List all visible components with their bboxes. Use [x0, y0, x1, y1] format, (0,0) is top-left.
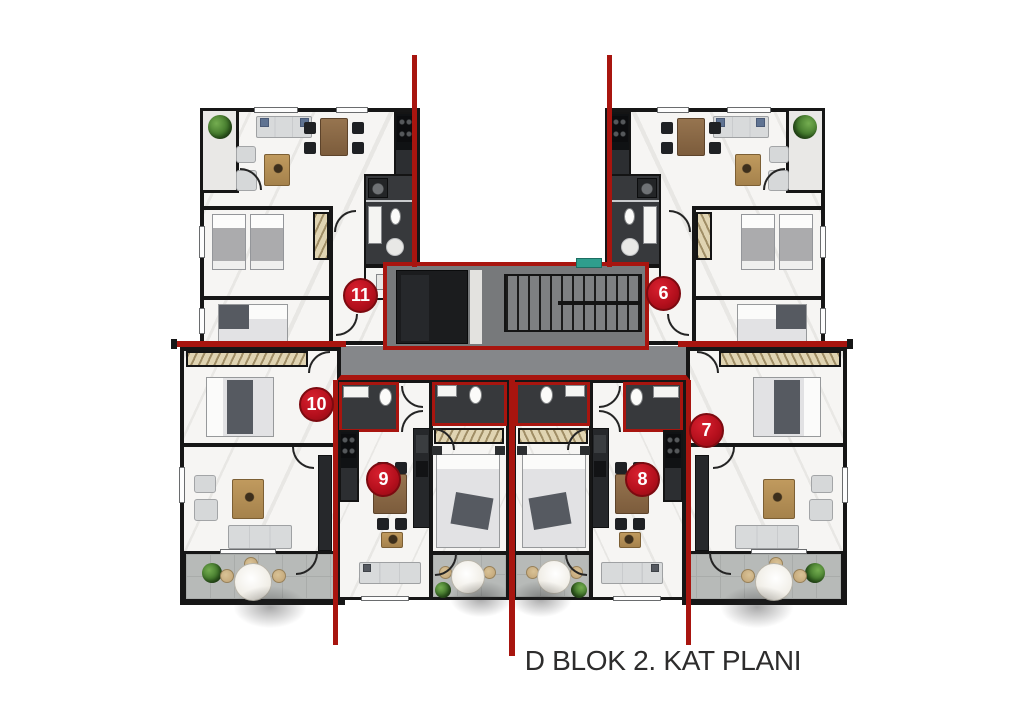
sofa-pillow: [260, 118, 269, 127]
bathroom-sink: [343, 386, 369, 398]
unit-marker-7: 7: [689, 413, 724, 448]
coffee-table: [619, 532, 641, 548]
twin-bed: [779, 214, 813, 270]
bathroom-sink: [643, 206, 657, 244]
coffee-table: [735, 154, 761, 186]
interior-wall: [692, 206, 822, 210]
plant-icon: [805, 563, 825, 583]
armchair: [194, 475, 216, 493]
toilet-icon: [390, 208, 401, 225]
unit-number: 8: [637, 469, 647, 490]
window: [657, 107, 689, 113]
table-shadow: [509, 580, 573, 618]
interior-wall: [203, 206, 333, 210]
window: [820, 308, 826, 334]
cooktop: [341, 434, 356, 458]
balcony-chair: [272, 569, 286, 583]
balcony-chair: [793, 569, 807, 583]
apartment-bottom-left: [180, 347, 345, 605]
window: [179, 467, 185, 503]
dining-table: [320, 118, 348, 156]
shower-glass: [366, 200, 414, 202]
elevator-cab: [401, 275, 429, 341]
bathroom-sink: [368, 206, 382, 244]
toilet-icon: [624, 208, 635, 225]
twin-bed: [250, 214, 284, 270]
coffee-table: [381, 532, 403, 548]
coffee-table: [763, 479, 795, 519]
unit-marker-8: 8: [625, 462, 660, 497]
section-line-bottom-left: [333, 380, 338, 645]
twin-bed: [741, 214, 775, 270]
double-bed: [436, 454, 500, 548]
bed-throw: [227, 380, 253, 434]
balcony-chair: [220, 569, 234, 583]
bed-throw: [529, 492, 572, 530]
exit-sign: [576, 258, 602, 268]
corridor: [337, 346, 690, 380]
elevator-landing: [470, 270, 482, 344]
floor-plan-canvas: 11 6 10 7 9 8 D BLOK 2. KAT PLANI: [0, 0, 1024, 724]
sofa: [735, 525, 799, 549]
bathroom-sink: [437, 385, 457, 397]
staircase: [504, 274, 642, 332]
bath-rug: [621, 238, 639, 256]
unit-number: 11: [351, 285, 370, 306]
plant-icon: [208, 115, 232, 139]
cooktop: [666, 434, 681, 458]
window: [199, 226, 205, 258]
oven: [416, 461, 428, 477]
toilet-icon: [469, 386, 482, 404]
armchair: [194, 499, 218, 521]
sofa-pillow: [756, 118, 765, 127]
bathroom-sink: [565, 385, 585, 397]
nightstand: [517, 446, 527, 455]
apartment-bottom-center-left: [337, 380, 509, 648]
window: [727, 107, 771, 113]
window: [199, 308, 205, 334]
tv-unit: [695, 455, 709, 551]
balcony-chair: [741, 569, 755, 583]
armchair: [811, 475, 833, 493]
shower-glass: [611, 200, 659, 202]
window: [254, 107, 298, 113]
washing-machine-icon: [368, 178, 388, 198]
unit-number: 6: [658, 283, 668, 304]
plant-icon: [793, 115, 817, 139]
window: [751, 549, 807, 554]
wardrobe: [313, 212, 329, 260]
table-shadow: [719, 585, 795, 629]
dining-table: [677, 118, 705, 156]
dining-chairs: [304, 122, 316, 134]
toilet-icon: [630, 388, 643, 406]
interior-wall: [203, 296, 333, 300]
unit-marker-11: 11: [343, 278, 378, 313]
double-bed: [218, 304, 288, 342]
cooktop: [612, 116, 628, 142]
kitchen-column: [413, 428, 430, 528]
cooktop: [397, 116, 413, 142]
bathroom-sink: [653, 386, 679, 398]
unit-marker-9: 9: [366, 462, 401, 497]
stair-divider: [558, 301, 640, 305]
armchair: [809, 499, 833, 521]
sofa-pillow: [651, 564, 659, 572]
unit-number: 10: [306, 394, 326, 415]
oven: [594, 461, 606, 477]
fridge: [594, 435, 606, 453]
double-bed: [206, 377, 274, 437]
bed-throw: [776, 305, 806, 329]
elevator: [396, 270, 468, 344]
double-bed: [522, 454, 586, 548]
dining-chairs: [709, 122, 721, 134]
toilet-icon: [379, 388, 392, 406]
fridge: [416, 435, 428, 453]
plant-icon: [202, 563, 222, 583]
wardrobe: [719, 351, 841, 367]
section-line-horizontal-right: [678, 341, 848, 347]
bed-throw: [774, 380, 800, 434]
section-line-bottom-center: [509, 378, 515, 656]
tv-unit: [318, 455, 332, 551]
nightstand: [495, 446, 505, 455]
interior-wall: [329, 206, 333, 342]
coffee-table: [264, 154, 290, 186]
interior-wall: [692, 296, 822, 300]
wardrobe: [186, 351, 308, 367]
coffee-table: [232, 479, 264, 519]
section-line-top-right: [607, 55, 612, 267]
window: [842, 467, 848, 503]
washing-machine-icon: [637, 178, 657, 198]
unit-marker-10: 10: [299, 387, 334, 422]
sofa: [228, 525, 292, 549]
window: [336, 107, 368, 113]
table-shadow: [449, 580, 513, 618]
unit-number: 9: [378, 469, 388, 490]
toilet-icon: [540, 386, 553, 404]
kitchen-column: [592, 428, 609, 528]
interior-wall: [183, 443, 342, 447]
armchair: [769, 146, 789, 163]
window: [220, 549, 276, 554]
section-line-top-left: [412, 55, 417, 267]
section-line-cap: [847, 339, 853, 349]
unit-marker-6: 6: [646, 276, 681, 311]
wardrobe: [696, 212, 712, 260]
window: [820, 226, 826, 258]
window: [613, 596, 661, 601]
double-bed: [753, 377, 821, 437]
section-line-cap: [171, 339, 177, 349]
unit-number: 7: [701, 420, 711, 441]
plant-icon: [571, 582, 587, 598]
bed-throw: [219, 305, 249, 329]
double-bed: [737, 304, 807, 342]
apartment-bottom-center-right: [513, 380, 685, 648]
armchair: [236, 146, 256, 163]
section-line-horizontal-left: [176, 341, 346, 347]
bed-throw: [451, 492, 494, 530]
section-line-bottom-right: [686, 380, 691, 645]
sofa-pillow: [363, 564, 371, 572]
window: [361, 596, 409, 601]
bath-rug: [386, 238, 404, 256]
twin-bed: [212, 214, 246, 270]
apartment-bottom-right: [682, 347, 847, 605]
table-shadow: [232, 585, 308, 629]
plan-title: D BLOK 2. KAT PLANI: [518, 645, 808, 677]
